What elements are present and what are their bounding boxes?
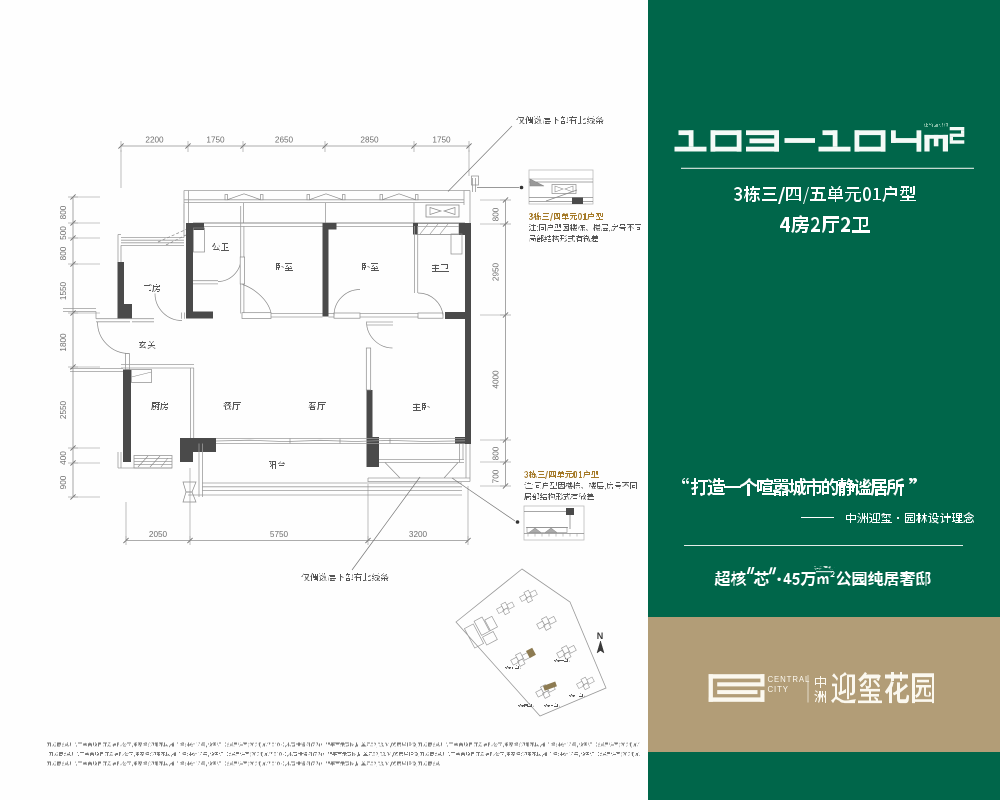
- svg-text:500: 500: [59, 226, 68, 240]
- svg-text:2200: 2200: [145, 136, 164, 145]
- svg-text:1550: 1550: [59, 281, 68, 300]
- svg-text:400: 400: [59, 451, 68, 465]
- svg-text:2650: 2650: [275, 136, 294, 145]
- svg-text:2850: 2850: [360, 136, 379, 145]
- svg-text:1750: 1750: [206, 136, 225, 145]
- svg-text:1750: 1750: [432, 136, 451, 145]
- svg-text:800: 800: [59, 205, 68, 219]
- svg-text:CITY: CITY: [768, 685, 789, 694]
- svg-text:3200: 3200: [409, 530, 428, 539]
- svg-text:N: N: [597, 631, 604, 641]
- svg-text:800: 800: [492, 446, 501, 460]
- svg-text:2050: 2050: [149, 530, 168, 539]
- svg-text:800: 800: [492, 207, 501, 221]
- svg-text:2950: 2950: [492, 262, 501, 281]
- svg-text:4000: 4000: [492, 370, 501, 389]
- svg-text:5750: 5750: [270, 530, 289, 539]
- svg-text:900: 900: [59, 475, 68, 489]
- svg-text:2550: 2550: [59, 400, 68, 419]
- svg-text:CENTRAL: CENTRAL: [768, 675, 811, 684]
- svg-text:800: 800: [59, 246, 68, 260]
- svg-text:1800: 1800: [59, 333, 68, 352]
- svg-text:700: 700: [492, 469, 501, 483]
